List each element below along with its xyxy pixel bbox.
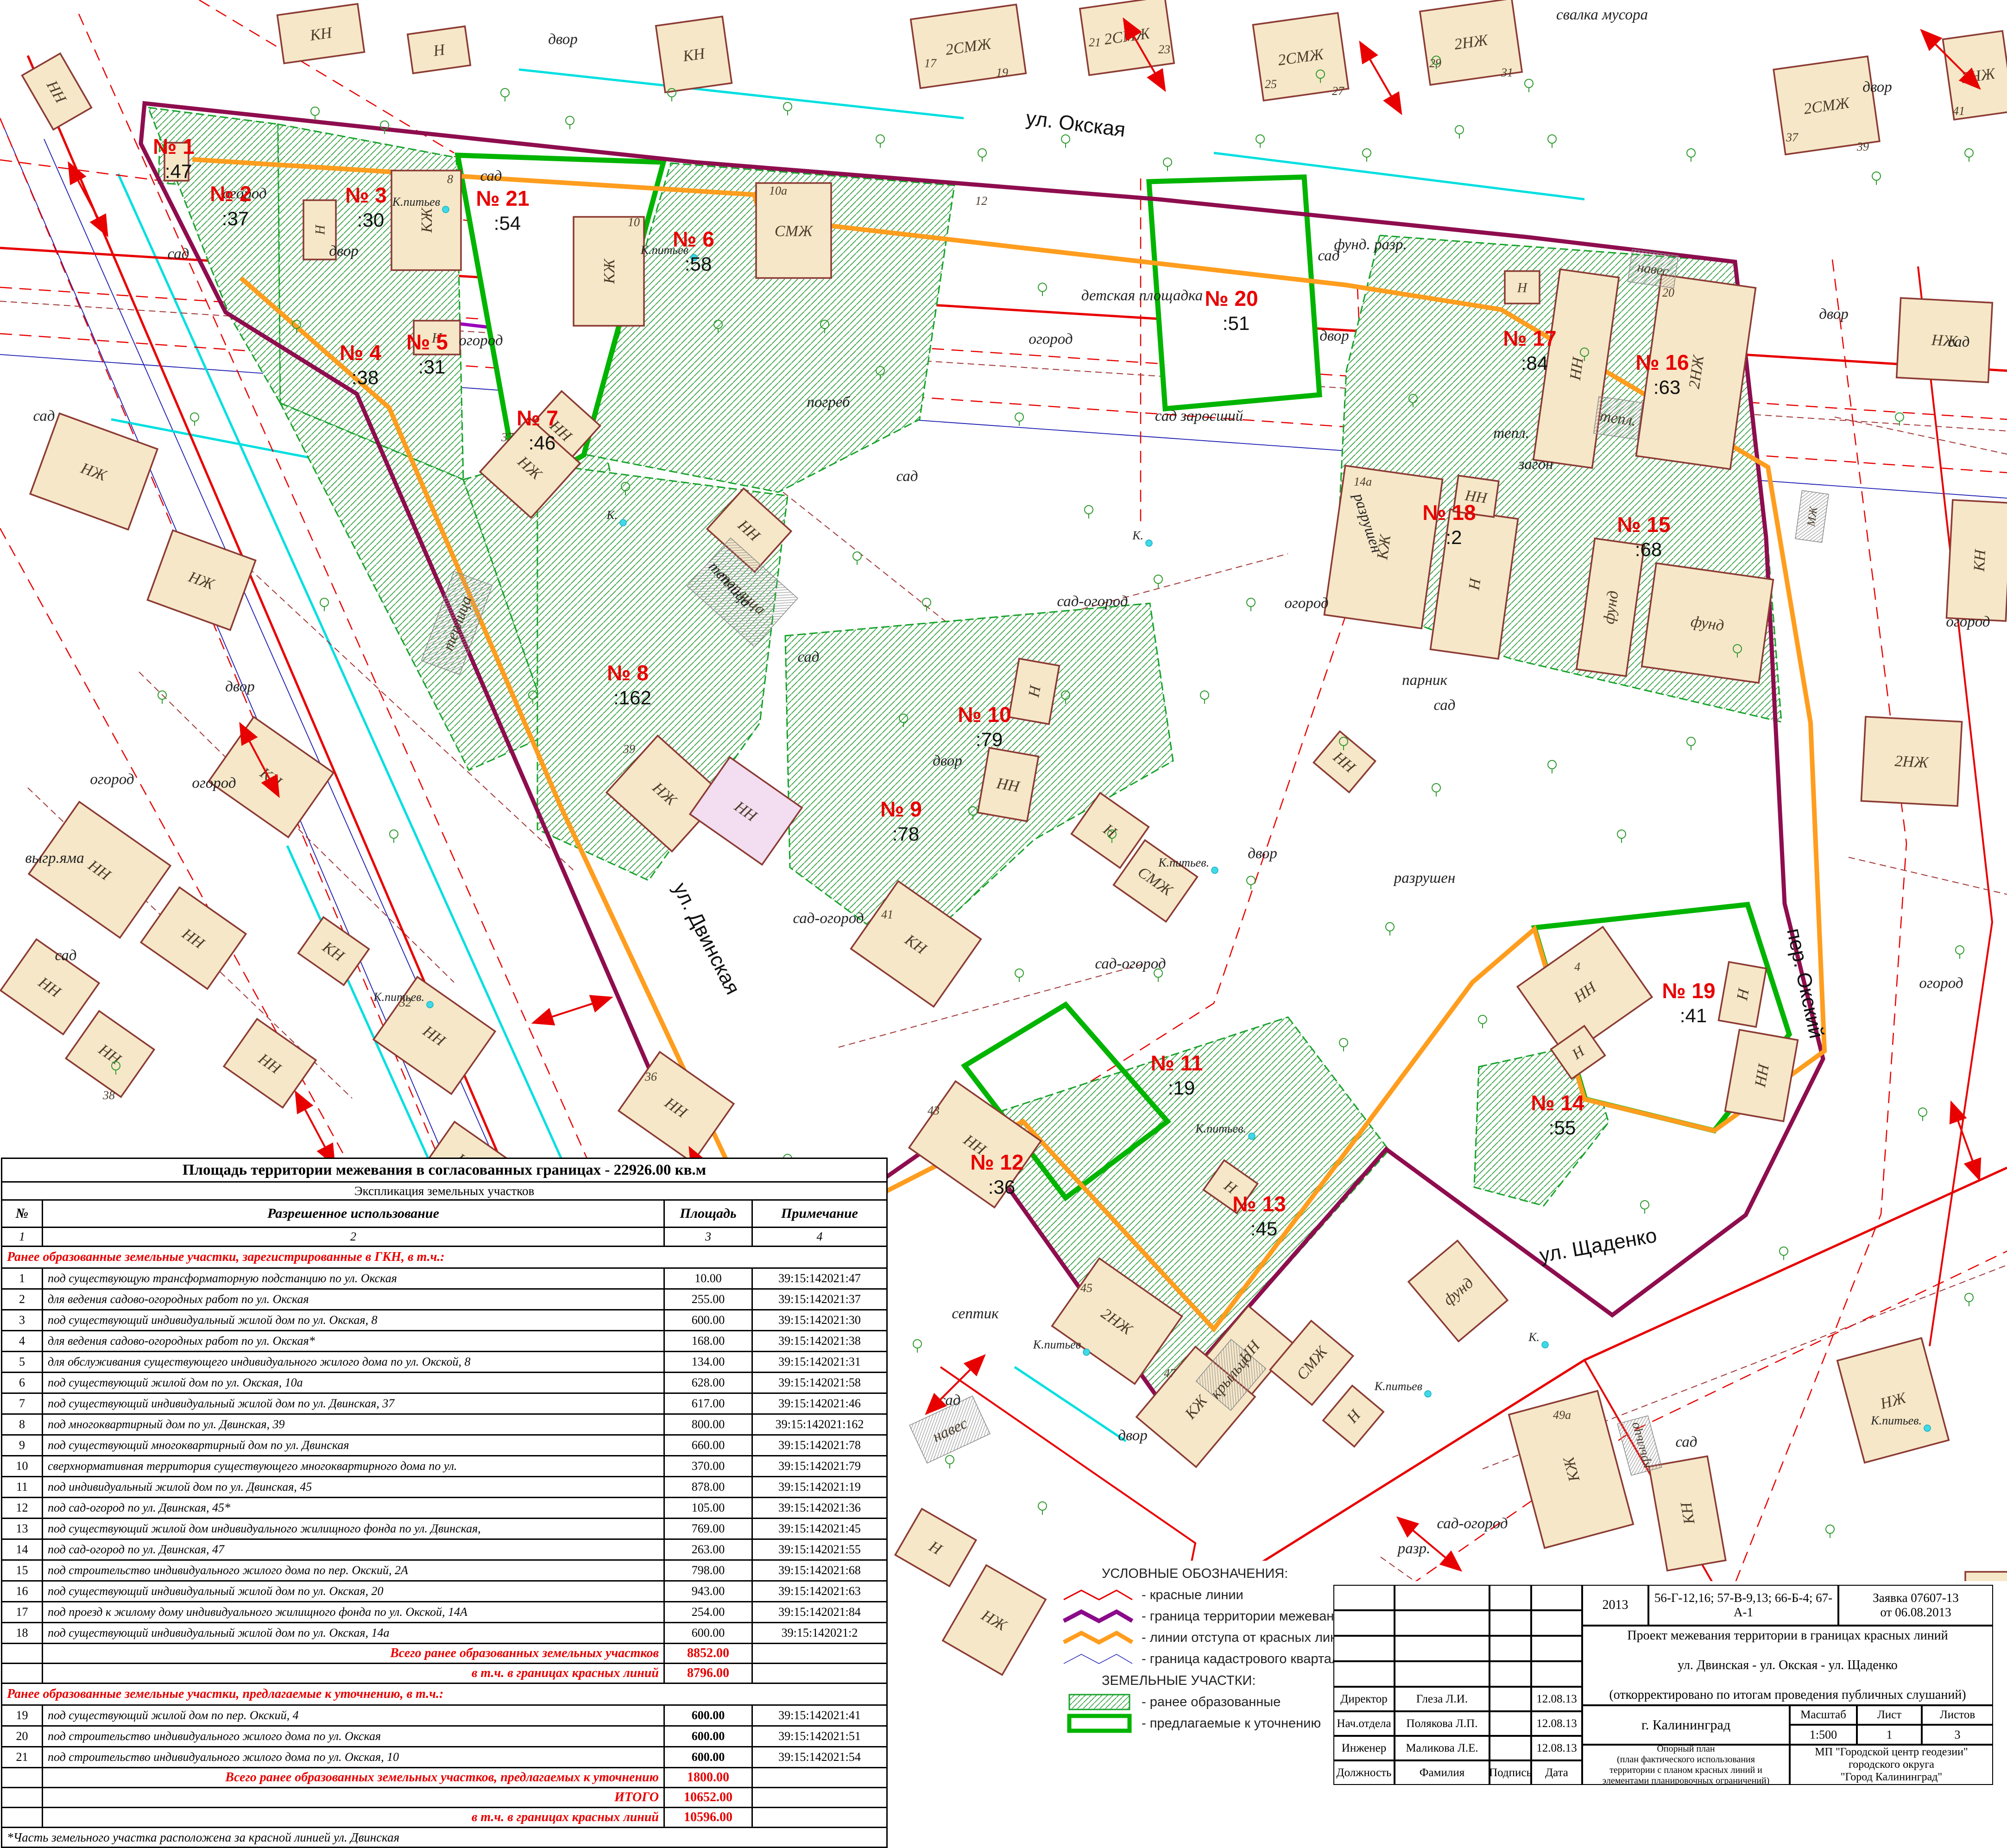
building: КН (1946, 500, 2007, 621)
svg-text:К.: К. (1528, 1330, 1540, 1344)
titleblock-cell: 12.08.13 (1531, 1711, 1582, 1736)
terrain-label: двор (329, 243, 359, 259)
house-number: 41 (1953, 104, 1965, 118)
terrain-label: разрушен (1393, 870, 1456, 886)
legend-item: - ранее образованные (1061, 1691, 1357, 1713)
titleblock-cell (1489, 1585, 1531, 1610)
svg-text::63: :63 (1654, 376, 1680, 398)
terrain-label: огород (1946, 614, 1990, 630)
building: фунд (1642, 563, 1773, 683)
terrain-label: сад-огород (793, 910, 864, 927)
svg-text:К.: К. (606, 508, 618, 522)
svg-text:№ 12: № 12 (970, 1150, 1023, 1174)
terrain-label: сад (55, 947, 77, 964)
titleblock-cell: г. Калининград (1582, 1705, 1790, 1745)
titleblock-cell: 56-Г-12,16; 57-В-9,13; 66-Б-4; 67-А-1 (1648, 1585, 1838, 1626)
house-number: 14а (1354, 475, 1372, 488)
titleblock-cell: Директор (1333, 1687, 1395, 1711)
house-number: 10а (769, 184, 787, 197)
map-legend: УСЛОВНЫЕ ОБОЗНАЧЕНИЯ:- красные линии- гр… (1061, 1566, 1357, 1734)
svg-text::46: :46 (529, 432, 555, 454)
svg-text:№ 1: № 1 (153, 134, 195, 158)
totals-row: ИТОГО10652.00 (2, 1788, 887, 1808)
titleblock-cell (1489, 1636, 1531, 1661)
titleblock-cell: Инженер (1333, 1736, 1395, 1760)
titleblock-cell (1531, 1636, 1582, 1661)
table-row: 15под строительство индивидуального жило… (2, 1560, 887, 1581)
house-number: 19 (996, 66, 1008, 79)
titleblock-cell: 1 (1857, 1725, 1922, 1745)
svg-text:№ 15: № 15 (1617, 513, 1670, 537)
titleblock-cell (1395, 1610, 1489, 1636)
svg-text:№ 16: № 16 (1635, 350, 1689, 374)
table-title: Площадь территории межевания в согласова… (2, 1158, 887, 1182)
terrain-label: сад (480, 168, 502, 184)
column-header: № (2, 1200, 43, 1228)
titleblock-cell: Подпись (1489, 1760, 1531, 1785)
titleblock-cell: Проект межевания территории в границах к… (1582, 1626, 1993, 1705)
building: НН (978, 748, 1038, 822)
svg-text::162: :162 (613, 687, 651, 709)
table-row: 21под строительство индивидуального жило… (2, 1747, 887, 1768)
svg-text:КН: КН (682, 45, 707, 65)
svg-text:К.питьев: К.питьев (1033, 1338, 1081, 1351)
svg-text:№ 11: № 11 (1151, 1051, 1203, 1075)
land-parcels-table: Площадь территории межевания в согласова… (1, 1158, 888, 1848)
house-number: 31 (1501, 66, 1513, 79)
house-number: 49а (1553, 1408, 1571, 1422)
table-row: 17под проезд к жилому дому индивидуально… (2, 1602, 887, 1623)
totals-row: Всего ранее образованных земельных участ… (2, 1768, 887, 1788)
terrain-label: тепл. (1493, 425, 1529, 442)
terrain-label: огород (459, 332, 503, 349)
svg-text:К.: К. (1132, 529, 1143, 542)
house-number: 4 (1574, 960, 1580, 974)
titleblock-cell (1333, 1610, 1395, 1636)
terrain-label: сад заросший (1155, 408, 1243, 424)
column-header: Примечание (752, 1200, 887, 1228)
svg-text::38: :38 (352, 367, 379, 388)
svg-text::31: :31 (418, 356, 445, 378)
house-number: 21 (1089, 36, 1101, 49)
house-number: 27 (1332, 84, 1344, 98)
titleblock-cell: 3 (1922, 1725, 1993, 1745)
svg-text:КЖ: КЖ (418, 207, 435, 234)
house-number: 43 (928, 1104, 940, 1117)
svg-text::19: :19 (1168, 1077, 1195, 1099)
terrain-label: двор (1862, 79, 1892, 95)
terrain-label: погреб (807, 394, 851, 411)
building: КН (656, 17, 732, 93)
table-row: 4для ведения садово-огородных работ по у… (2, 1331, 887, 1352)
table-row: 3под существующий индивидуальный жилой д… (2, 1310, 887, 1331)
titleblock-cell: Лист (1857, 1705, 1922, 1725)
terrain-label: двор (1118, 1427, 1148, 1444)
building: СМЖ (756, 183, 831, 278)
table-row: 12под сад-огород по ул. Двинская, 45*105… (2, 1498, 887, 1519)
house-number: 29 (1429, 57, 1441, 70)
table-row: 9под существующий многоквартирный дом по… (2, 1435, 887, 1456)
table-row: 1под существующую трансформаторную подст… (2, 1268, 887, 1289)
titleblock-cell: Полякова Л.П. (1395, 1711, 1489, 1736)
house-number: 23 (1158, 43, 1170, 56)
svg-text::54: :54 (494, 212, 521, 234)
terrain-label: двор (548, 31, 578, 48)
svg-text:КН: КН (1971, 548, 1989, 572)
svg-text:№ 8: № 8 (607, 661, 649, 685)
terrain-label: сад (33, 408, 55, 424)
house-number: 37 (1786, 131, 1799, 144)
svg-text::36: :36 (988, 1176, 1015, 1198)
svg-text:К.питьев.: К.питьев. (373, 990, 424, 1004)
titleblock-cell (1489, 1610, 1531, 1636)
svg-text:Н: Н (313, 224, 328, 235)
svg-text::37: :37 (222, 208, 249, 229)
totals-row: в т.ч. в границах красных линий10596.00 (2, 1808, 887, 1828)
svg-text:№ 10: № 10 (958, 702, 1011, 727)
table-subtitle: Экспликация земельных участков (2, 1182, 887, 1200)
terrain-label: сад-огород (1095, 956, 1166, 972)
terrain-label: сад (939, 1392, 961, 1409)
building: навес (1628, 249, 1679, 288)
house-number: 20 (1662, 286, 1674, 299)
terrain-label: двор (1248, 845, 1277, 862)
legend-item: - красные линии (1061, 1584, 1357, 1606)
terrain-label: парник (1402, 672, 1447, 689)
house-number: 45 (1080, 1281, 1092, 1295)
svg-text:№ 20: № 20 (1205, 286, 1258, 310)
legend-item: - граница территории межевания (1061, 1606, 1357, 1627)
house-number: 25 (1265, 77, 1277, 91)
svg-text::51: :51 (1223, 312, 1250, 334)
titleblock-cell (1531, 1661, 1582, 1687)
house-number: 36 (644, 1070, 657, 1083)
svg-text:№ 5: № 5 (406, 330, 448, 354)
section-header: Ранее образованные земельные участки, пр… (2, 1683, 887, 1705)
titleblock-cell: Нач.отдела (1333, 1711, 1395, 1736)
table-row: 19под существующий жилой дом по пер. Окс… (2, 1705, 887, 1726)
svg-text::41: :41 (1680, 1005, 1707, 1026)
table-row: 20под строительство индивидуального жило… (2, 1726, 887, 1747)
svg-text:К.питьев.: К.питьев. (1195, 1122, 1246, 1135)
titleblock-cell: Листов (1922, 1705, 1993, 1725)
table-row: 14под сад-огород по ул. Двинская, 47263.… (2, 1539, 887, 1560)
svg-text::68: :68 (1635, 538, 1662, 560)
terrain-label: свалка мусора (1556, 6, 1648, 23)
titleblock-cell (1489, 1711, 1531, 1736)
svg-text:СМЖ: СМЖ (775, 222, 814, 240)
terrain-label: загон (1518, 456, 1553, 473)
svg-text::84: :84 (1521, 352, 1548, 374)
terrain-label: сад (1676, 1434, 1698, 1450)
svg-text::58: :58 (685, 253, 712, 275)
table-row: 16под существующий индивидуальный жилой … (2, 1581, 887, 1602)
svg-text:№ 9: № 9 (880, 797, 922, 821)
svg-text:№ 3: № 3 (345, 183, 387, 207)
terrain-label: огород (1284, 595, 1328, 612)
titleblock-cell: 12.08.13 (1531, 1687, 1582, 1711)
terrain-label: сад (1434, 697, 1456, 714)
table-row: 5для обслуживания существующего индивиду… (2, 1352, 887, 1373)
house-number: 47 (1164, 1367, 1176, 1380)
house-number: 39 (1856, 140, 1869, 153)
building: 2НЖ (1861, 717, 1962, 806)
terrain-label: сад (1948, 334, 1970, 350)
terrain-label: сад-огород (1057, 593, 1128, 610)
building: НЖ (1897, 298, 1993, 382)
exploitation-table: Площадь территории межевания в согласова… (1, 1158, 888, 1848)
svg-text:№ 13: № 13 (1232, 1192, 1286, 1216)
titleblock-cell: 12.08.13 (1531, 1736, 1582, 1760)
legend-subtitle: ЗЕМЕЛЬНЫЕ УЧАСТКИ: (1102, 1673, 1357, 1689)
terrain-label: септик (952, 1305, 999, 1322)
titleblock-cell (1395, 1661, 1489, 1687)
svg-text::47: :47 (165, 160, 192, 182)
titleblock-cell: Заявка 07607-13от 06.08.2013 (1838, 1585, 1993, 1626)
terrain-label: двор (1319, 328, 1349, 344)
svg-text:№ 14: № 14 (1531, 1091, 1584, 1115)
titleblock-cell: Должность (1333, 1760, 1395, 1785)
terrain-label: огород (192, 775, 236, 791)
titleblock-cell (1395, 1636, 1489, 1661)
svg-text:№ 2: № 2 (210, 182, 252, 206)
titleblock-cell (1489, 1661, 1531, 1687)
table-row: 8под многоквартирный дом по ул. Двинская… (2, 1414, 887, 1435)
svg-text:К.питьев: К.питьев (1374, 1380, 1422, 1393)
parcel-label: № 8:162 (607, 661, 651, 709)
titleblock-cell: Маликова Л.Е. (1395, 1736, 1489, 1760)
titleblock-cell: Масштаб (1790, 1705, 1857, 1725)
house-number: 37 (501, 430, 514, 444)
svg-text:№ 7: № 7 (517, 406, 558, 430)
drawing-title-block: ДиректорГлеза Л.И.12.08.13Нач.отделаПоля… (1333, 1585, 1993, 1785)
table-row: 10сверхнормативная территория существующ… (2, 1456, 887, 1477)
legend-title: УСЛОВНЫЕ ОБОЗНАЧЕНИЯ: (1102, 1566, 1357, 1582)
building: КЖ (574, 217, 644, 326)
titleblock-cell (1333, 1661, 1395, 1687)
titleblock-cell: Опорный план(план фактического использов… (1582, 1745, 1790, 1785)
svg-text:КН: КН (309, 24, 334, 44)
totals-row: Всего ранее образованных земельных участ… (2, 1644, 887, 1664)
titleblock-cell (1395, 1585, 1489, 1610)
house-number: 38 (102, 1089, 115, 1102)
svg-text::55: :55 (1549, 1117, 1576, 1139)
titleblock-cell: Дата (1531, 1760, 1582, 1785)
table-row: 13под существующий жилой дом индивидуаль… (2, 1519, 887, 1539)
svg-text:№ 21: № 21 (476, 186, 529, 210)
svg-text:НН: НН (1567, 355, 1587, 381)
building: тепл. (1594, 397, 1642, 439)
terrain-label: двор (225, 678, 255, 695)
svg-text:№ 4: № 4 (340, 341, 381, 365)
terrain-label: сад (896, 468, 918, 485)
svg-text:№ 17: № 17 (1503, 326, 1556, 350)
terrain-label: двор (1819, 306, 1849, 323)
titleblock-cell: 2013 (1582, 1585, 1648, 1626)
legend-item: - линии отступа от красных линий (1061, 1627, 1357, 1648)
section-header: Ранее образованные земельные участки, за… (2, 1247, 887, 1268)
column-header: Разрешенное использование (43, 1200, 664, 1228)
svg-text:№ 6: № 6 (673, 227, 714, 251)
table-row: 7под существующий индивидуальный жилой д… (2, 1393, 887, 1414)
terrain-label: огород (90, 771, 134, 788)
totals-row: в т.ч. в границах красных линий8796.00 (2, 1664, 887, 1683)
titleblock-cell: 1:500 (1790, 1725, 1857, 1745)
building: Н (1505, 271, 1540, 304)
svg-text::78: :78 (892, 823, 919, 845)
terrain-label: выгр.яма (25, 850, 84, 867)
svg-text::30: :30 (357, 209, 384, 231)
titleblock-cell: Глеза Л.И. (1395, 1687, 1489, 1711)
titleblock-cell (1333, 1585, 1395, 1610)
terrain-label: разр. (1397, 1540, 1431, 1557)
terrain-label: сад (168, 246, 189, 262)
titleblock-cell (1333, 1636, 1395, 1661)
house-number: 17 (924, 57, 937, 70)
svg-text:К.питьев.: К.питьев. (1158, 856, 1209, 869)
titleblock-cell (1531, 1610, 1582, 1636)
house-number: 10 (628, 215, 640, 229)
svg-text::79: :79 (976, 728, 1003, 750)
svg-text:Н: Н (1517, 280, 1528, 295)
svg-text::2: :2 (1445, 526, 1462, 548)
svg-text:№ 18: № 18 (1422, 500, 1476, 525)
titleblock-cell (1489, 1736, 1531, 1760)
terrain-label: сад (798, 649, 820, 665)
svg-text:№ 19: № 19 (1662, 979, 1715, 1003)
terrain-label: огород (1029, 331, 1073, 348)
column-header: Площадь (664, 1200, 752, 1228)
titleblock-cell: МП "Городской центр геодезии"городского … (1790, 1745, 1993, 1785)
building: Н (408, 26, 471, 74)
svg-text::45: :45 (1250, 1218, 1277, 1240)
house-number: 12 (975, 194, 987, 208)
table-row: 18под существующий индивидуальный жилой … (2, 1623, 887, 1644)
table-footnote: *Часть земельного участка расположена за… (2, 1828, 887, 1848)
house-number: 39 (623, 742, 635, 756)
house-number: 41 (881, 908, 893, 921)
house-number: 32 (399, 996, 411, 1009)
table-row: 11под индивидуальный жилой дом по ул. Дв… (2, 1477, 887, 1498)
terrain-label: огород (1919, 975, 1963, 992)
svg-text:КЖ: КЖ (601, 258, 618, 285)
svg-text:К.питьев.: К.питьев. (1870, 1414, 1922, 1427)
legend-item: - предлагаемые к уточнению (1061, 1713, 1357, 1734)
building: 2СМЖ (911, 5, 1026, 89)
table-row: 6под существующий жилой дом по ул. Окска… (2, 1373, 887, 1393)
svg-text:2НЖ: 2НЖ (1894, 753, 1930, 772)
terrain-label: фунд. разр. (1334, 236, 1407, 253)
terrain-label: двор (933, 753, 962, 769)
table-row: 2для ведения садово-огородных работ по у… (2, 1289, 887, 1310)
terrain-label: детская площадка (1081, 287, 1203, 304)
titleblock-cell (1489, 1687, 1531, 1711)
titleblock-cell: Фамилия (1395, 1760, 1489, 1785)
terrain-label: сад-огород (1437, 1515, 1508, 1532)
building: КН (278, 4, 365, 63)
titleblock-cell (1531, 1585, 1582, 1610)
legend-item: - граница кадастрового квартала (1061, 1648, 1357, 1670)
svg-text:К.питьев: К.питьев (392, 195, 440, 209)
house-number: 8 (447, 172, 453, 186)
